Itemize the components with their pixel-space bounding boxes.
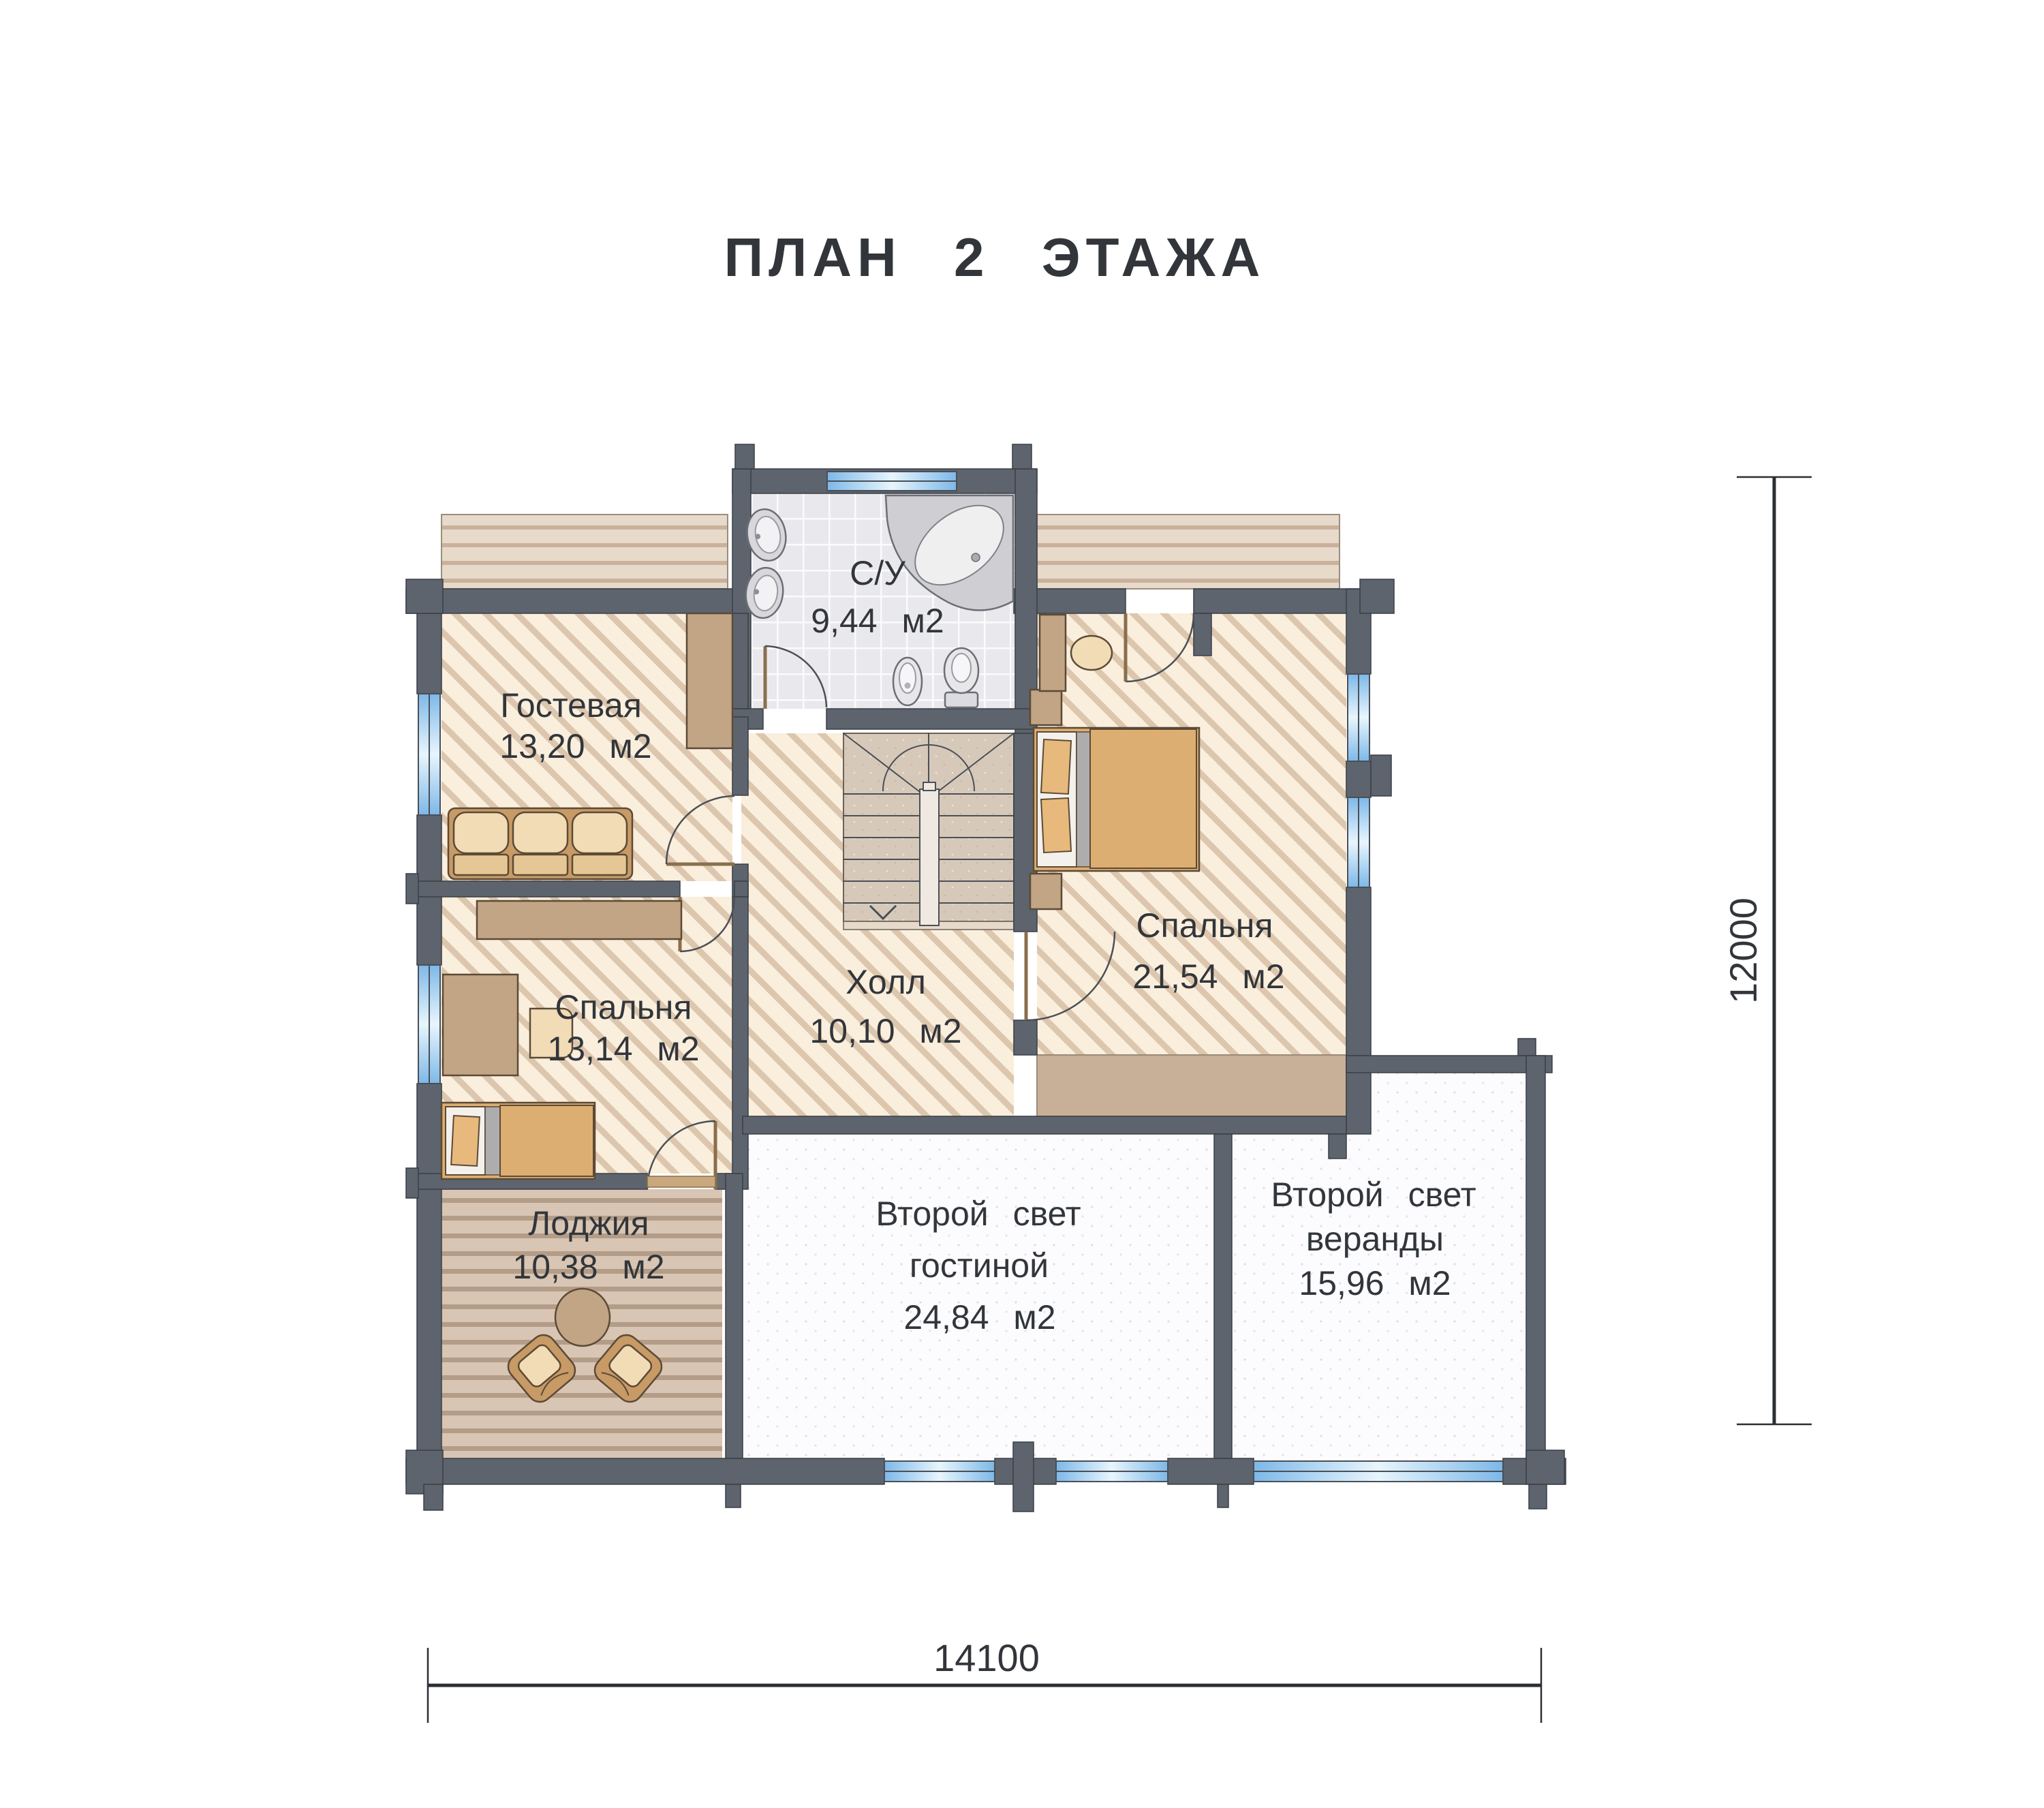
post-bathroom-top-right (1012, 444, 1032, 469)
post-top-left-corner (406, 579, 443, 613)
page-title: ПЛАН 2 ЭТАЖА (724, 227, 1266, 288)
post-left-mid-1 (406, 874, 418, 904)
window-bedroom-big-right-1 (1348, 674, 1369, 761)
post-bottom-right-foot (1529, 1484, 1547, 1509)
post-bottom-left-foot (424, 1484, 443, 1510)
dresser-icon (1040, 615, 1066, 691)
bedroom-big-ledge (1037, 1055, 1346, 1116)
post-bottom-center (1013, 1442, 1034, 1512)
void-living-floor (743, 1134, 1214, 1458)
bedroom-big-area-label: 21,54 м2 (1132, 957, 1284, 996)
guest-name-label: Гостевая (500, 686, 642, 724)
post-veranda-top (1518, 1039, 1536, 1056)
single-bed-icon (442, 1103, 595, 1179)
round-table-icon (555, 1289, 610, 1346)
wall-right-2 (1346, 761, 1371, 797)
post-top-right-corner (1360, 579, 1394, 613)
stool-icon (1071, 636, 1112, 670)
hall-name-label: Холл (846, 963, 926, 1001)
terrace-roof-left (442, 515, 728, 589)
wall-veranda-top (1346, 1056, 1552, 1073)
window-void-living-2 (1056, 1461, 1168, 1482)
window-bedroom-big-right-2 (1348, 797, 1369, 887)
staircase (843, 733, 1014, 930)
bathroom-area-label: 9,44 м2 (811, 602, 944, 640)
wall-top-left-block (406, 589, 741, 613)
wall-guest-bedroom-partition (417, 881, 680, 897)
wall-top-right-block-2 (1194, 589, 1371, 613)
void-living-area: 24,84 м2 (903, 1298, 1055, 1336)
wall-void-divider (1214, 1134, 1232, 1458)
wall-veranda-right (1526, 1056, 1545, 1458)
post-bathroom-top-left (735, 444, 754, 469)
wall-bedroom-big-stub (1194, 613, 1211, 656)
post-right-wall (1371, 755, 1391, 796)
loggia-threshold (647, 1176, 715, 1187)
terrace-roof-right (1037, 515, 1340, 589)
nightstand-icon (1030, 690, 1062, 725)
window-bathroom-top (827, 472, 957, 491)
floor-plan-drawing: С/У 9,44 м2 Гостевая 13,20 м2 Спальня 21… (0, 0, 2044, 1808)
wall-bathroom-bottom-2 (826, 709, 1037, 729)
wall-guest-bedroom-partition-end (734, 881, 748, 897)
hall-area-label: 10,10 м2 (809, 1012, 961, 1050)
bathroom-name-label: С/У (850, 554, 905, 592)
wardrobe-icon (687, 613, 732, 748)
wall-bottom-1 (406, 1458, 884, 1484)
wall-hall-bedroom-big-2 (1014, 1020, 1037, 1055)
dimension-right: 12000 (1722, 477, 1812, 1424)
void-veranda-area: 15,96 м2 (1299, 1264, 1451, 1302)
floor-plan-page: С/У 9,44 м2 Гостевая 13,20 м2 Спальня 21… (0, 0, 2044, 1808)
wall-guest-hall-1 (732, 613, 748, 709)
post-left-mid-2 (406, 1168, 418, 1198)
wall-block-bottom (743, 1116, 1346, 1134)
wall-right-3 (1346, 887, 1371, 1134)
wall-left-3 (417, 1084, 442, 1458)
staircase-stringer-cap (923, 782, 935, 791)
wall-block-bottom-stub (1329, 1134, 1346, 1159)
bedroom-small-name-label: Спальня (555, 988, 692, 1026)
dimension-height-label: 12000 (1722, 898, 1765, 1004)
loggia-name-label: Лоджия (528, 1204, 649, 1242)
void-veranda-line2: веранды (1306, 1220, 1444, 1258)
dimension-bottom: 14100 (428, 1636, 1541, 1723)
post-bottom-loggia (726, 1484, 741, 1507)
window-void-living-1 (884, 1461, 995, 1482)
toilet-icon (944, 648, 978, 707)
window-bedroom-small-left (418, 965, 440, 1084)
void-living-line1: Второй свет (876, 1195, 1081, 1233)
wall-void-left (726, 1174, 743, 1458)
loggia-area-label: 10,38 м2 (512, 1248, 664, 1286)
guest-area-label: 13,20 м2 (499, 727, 651, 765)
wall-bottom-3 (1168, 1458, 1254, 1484)
wall-bedroom-small-hall (732, 897, 748, 1189)
cabinet-icon (477, 901, 681, 939)
double-bed-icon (1034, 728, 1199, 871)
post-bottom-right-corner (1526, 1450, 1564, 1484)
window-void-veranda (1254, 1461, 1503, 1482)
sofa-icon (448, 808, 632, 879)
bidet-icon (893, 658, 922, 705)
nightstand-icon (1030, 874, 1062, 909)
staircase-stringer (920, 789, 939, 925)
void-living-line2: гостиной (910, 1246, 1049, 1285)
wall-guest-hall-2 (732, 717, 748, 795)
bedroom-small-area-label: 13,14 м2 (547, 1030, 699, 1068)
post-bottom-divider (1218, 1484, 1228, 1507)
desk-icon (443, 975, 518, 1075)
window-guest-left (418, 694, 440, 815)
dimension-width-label: 14100 (933, 1636, 1040, 1679)
bedroom-big-name-label: Спальня (1136, 906, 1273, 945)
void-veranda-line1: Второй свет (1271, 1176, 1476, 1214)
